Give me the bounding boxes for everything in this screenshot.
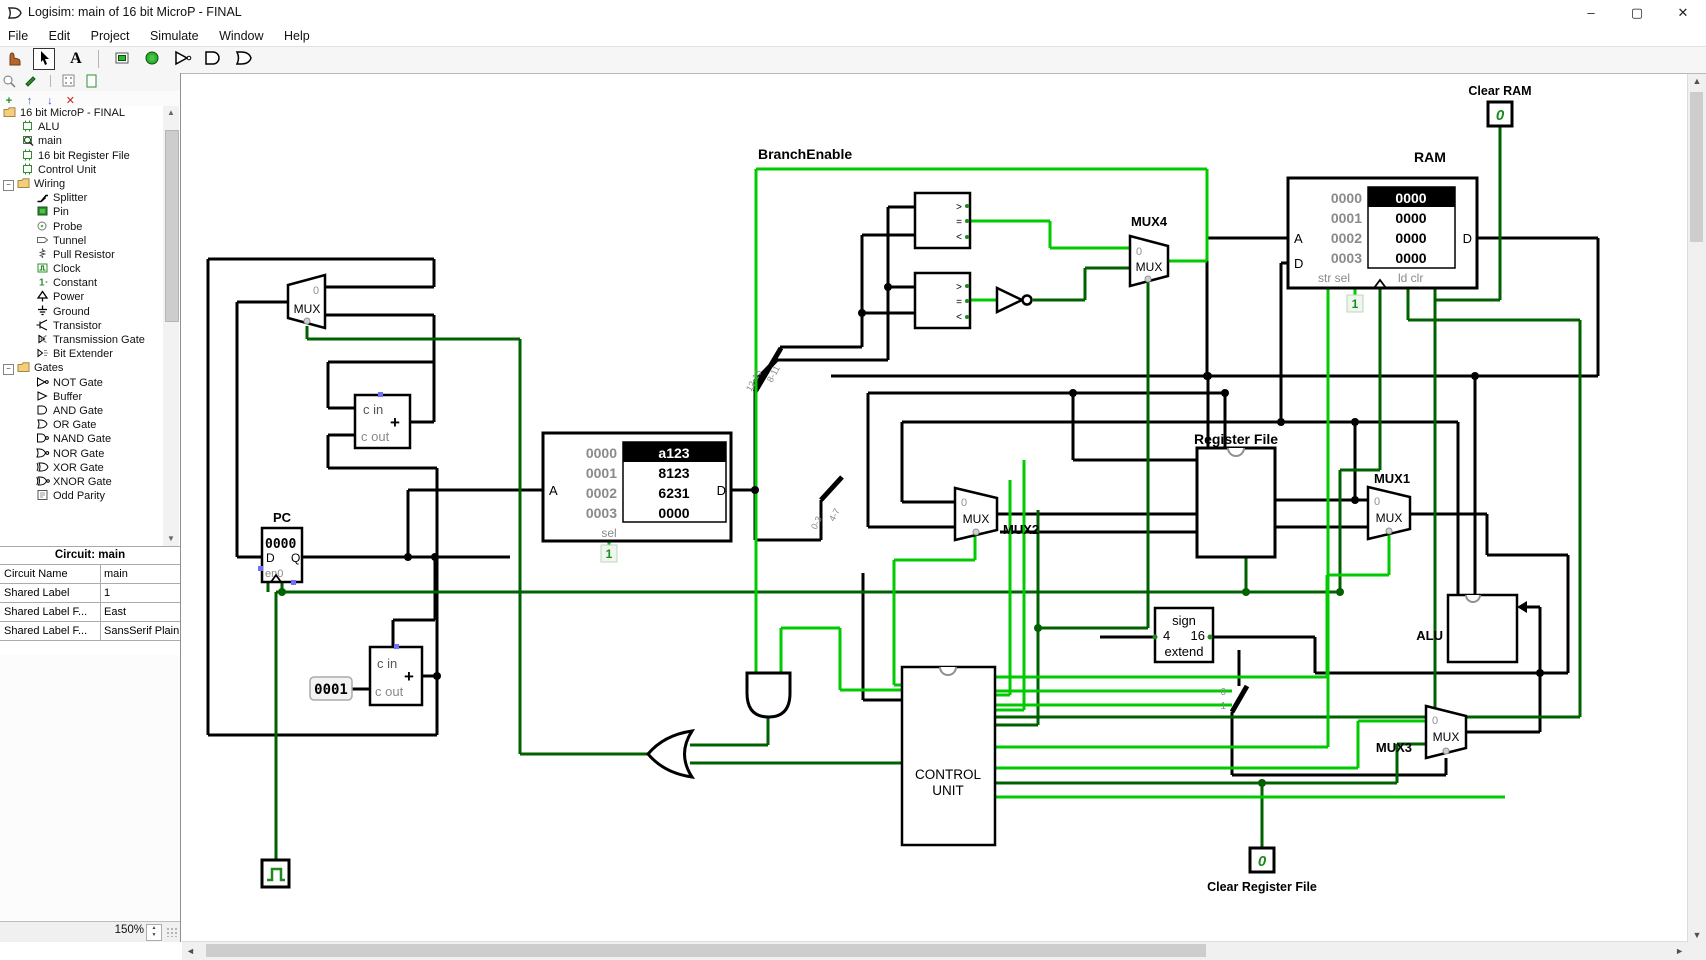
adder-2[interactable]: c in + c out [370, 644, 422, 705]
svg-text:RAM: RAM [1414, 149, 1446, 165]
svg-text:Clear RAM: Clear RAM [1468, 84, 1531, 98]
ground-icon [36, 305, 50, 317]
svg-text:0000: 0000 [265, 537, 296, 552]
edit-appearance-icon[interactable] [24, 74, 38, 88]
svg-text:0000: 0000 [1395, 230, 1426, 246]
svg-text:D: D [1294, 256, 1303, 271]
tree-item-not-gate[interactable]: NOT Gate [0, 376, 180, 390]
collapse-icon[interactable]: − [3, 180, 14, 191]
menu-file[interactable]: File [0, 26, 36, 46]
svg-text:0003: 0003 [586, 505, 617, 521]
svg-text:MUX3: MUX3 [1376, 740, 1412, 755]
and-gate-icon [36, 404, 50, 416]
not-gate[interactable] [997, 288, 1032, 312]
svg-text:ALU: ALU [1416, 628, 1443, 643]
not-gate-icon [36, 376, 50, 388]
spin-down-icon[interactable]: ▼ [147, 932, 161, 939]
or-gate-icon[interactable] [234, 49, 254, 69]
clear-ram-pin[interactable]: Clear RAM 0 [1468, 84, 1531, 126]
svg-text:UNIT: UNIT [932, 783, 964, 798]
svg-text:0: 0 [1258, 853, 1267, 870]
svg-text:>: > [956, 282, 962, 293]
svg-text:>: > [956, 202, 962, 213]
svg-text:16: 16 [1191, 628, 1205, 643]
tree-scrollbar-thumb[interactable] [165, 130, 179, 322]
scroll-up-icon[interactable]: ▲ [163, 106, 179, 120]
xnor-gate-icon [36, 475, 50, 487]
svg-text:c out: c out [361, 429, 390, 444]
attribute-row[interactable]: Circuit Name main [0, 564, 180, 583]
tree-item-odd-parity[interactable]: Odd Parity [0, 489, 180, 503]
layout-view-icon[interactable] [62, 74, 76, 88]
nor-gate-icon [36, 447, 50, 459]
mux3[interactable]: MUX3 0 MUX [1376, 706, 1466, 758]
project-toolbar [0, 73, 180, 92]
poke-tool-icon[interactable] [3, 49, 23, 69]
probe-icon [36, 220, 50, 232]
zoom-level[interactable]: 150% [115, 924, 144, 936]
attribute-value[interactable]: main [101, 565, 180, 583]
svg-text:A: A [1294, 231, 1303, 246]
zoom-control: 150% ▲ ▼ [0, 921, 180, 942]
svg-text:1: 1 [606, 547, 613, 561]
tree-item-splitter[interactable]: Splitter [0, 191, 180, 205]
svg-text:D: D [1463, 231, 1472, 246]
svg-text:MUX: MUX [963, 512, 990, 526]
window-title: Logisim: main of 16 bit MicroP - FINAL [28, 5, 242, 19]
folder-icon [3, 106, 17, 118]
left-panel: + ↑ ↓ ✕ 16 bit MicroP - FINAL ALU main 1… [0, 73, 181, 942]
svg-text:Register File: Register File [1194, 431, 1278, 447]
output-pin-icon[interactable] [142, 49, 162, 69]
branch-and-gate[interactable] [747, 673, 790, 717]
svg-text:c out: c out [375, 684, 404, 699]
maximize-button[interactable]: ▢ [1614, 0, 1660, 26]
odd-parity-icon [36, 489, 50, 501]
svg-text:0002: 0002 [1331, 230, 1362, 246]
svg-text:0001: 0001 [1331, 210, 1362, 226]
text-tool-icon[interactable]: A [66, 49, 86, 69]
spin-up-icon[interactable]: ▲ [147, 925, 161, 932]
rom-sel-constant[interactable]: 1 [601, 545, 617, 562]
minimize-button[interactable]: – [1568, 0, 1614, 26]
svg-text:MUX: MUX [1136, 260, 1163, 274]
svg-text:<: < [956, 232, 962, 243]
attribute-row[interactable]: Shared Label F... East [0, 602, 180, 621]
svg-text:MUX: MUX [294, 302, 321, 316]
transmission-gate-icon [36, 333, 50, 345]
svg-text:0000: 0000 [658, 505, 689, 521]
svg-text:ld clr: ld clr [1398, 271, 1423, 285]
menu-help[interactable]: Help [276, 26, 318, 46]
toolbar-separator [50, 75, 51, 87]
pin-icon [36, 205, 50, 217]
branch-or-gate[interactable] [648, 731, 692, 777]
clear-register-file-pin[interactable]: 0 Clear Register File [1207, 848, 1317, 894]
canvas-vertical-scrollbar[interactable]: ▲ ▼ [1687, 74, 1706, 942]
project-explorer-tree: 16 bit MicroP - FINAL ALU main 16 bit Re… [0, 106, 180, 546]
svg-text:1: 1 [1352, 297, 1359, 311]
register-file[interactable]: Register File [1194, 431, 1278, 557]
circuit-icon [21, 120, 35, 132]
logisim-app-icon [7, 5, 24, 26]
tree-item-constant[interactable]: 1Constant [0, 276, 180, 290]
attribute-row[interactable]: Shared Label 1 [0, 583, 180, 602]
tree-item-buffer[interactable]: Buffer [0, 390, 180, 404]
circuit-icon [21, 149, 35, 161]
svg-text:0: 0 [313, 285, 319, 297]
circuit-svg[interactable]: 0 MUX c in + c out c in + c out 0001 PC … [182, 74, 1688, 942]
pc-register[interactable]: PC 0000 D Q en0 [258, 510, 302, 585]
tree-item-clock[interactable]: Clock [0, 262, 180, 276]
circuit-icon [21, 163, 35, 175]
scroll-up-icon[interactable]: ▲ [1688, 76, 1706, 86]
instruction-rom[interactable]: 0000 0001 0002 0003 a123 8123 6231 0000 … [543, 433, 731, 541]
svg-text:0001: 0001 [314, 682, 348, 698]
resize-grip-icon [166, 927, 178, 937]
menu-edit[interactable]: Edit [41, 26, 79, 46]
svg-text:str sel: str sel [1318, 271, 1350, 285]
tree-item-wiring[interactable]: −Wiring [0, 177, 180, 191]
main-toolbar: A [0, 46, 1706, 74]
tree-item-power[interactable]: Power [0, 290, 180, 304]
svg-text:Clear Register File: Clear Register File [1207, 880, 1317, 894]
scroll-left-icon[interactable]: ◄ [186, 946, 195, 956]
tree-item-gates[interactable]: −Gates [0, 361, 180, 375]
attribute-label: Shared Label F... [0, 622, 101, 640]
tree-item-nand-gate[interactable]: NAND Gate [0, 432, 180, 446]
attribute-label: Circuit Name [0, 565, 101, 583]
svg-text:D: D [717, 483, 726, 498]
tree-item-tunnel[interactable]: Tunnel [0, 234, 180, 248]
svg-text:c in: c in [363, 402, 383, 417]
bit-extender-icon [36, 347, 50, 359]
branch-enable-label: BranchEnable [758, 146, 852, 162]
svg-text:0000: 0000 [1395, 210, 1426, 226]
svg-text:sign: sign [1172, 613, 1196, 628]
svg-text:0: 0 [1374, 496, 1380, 508]
svg-text:CONTROL: CONTROL [915, 767, 981, 782]
edit-tool-icon[interactable] [33, 48, 55, 70]
tree-item-xor-gate[interactable]: XOR Gate [0, 461, 180, 475]
scroll-down-icon[interactable]: ▼ [1688, 930, 1706, 940]
svg-text:<: < [956, 312, 962, 323]
svg-text:=: = [956, 217, 962, 228]
nand-gate-icon [36, 432, 50, 444]
svg-text:MUX4: MUX4 [1131, 214, 1168, 229]
svg-text:sel: sel [601, 526, 616, 540]
comparator-2[interactable]: > = < [915, 273, 970, 328]
svg-text:0000: 0000 [1395, 190, 1426, 206]
tree-item-or-gate[interactable]: OR Gate [0, 418, 180, 432]
toolbar-separator [98, 50, 99, 68]
horizontal-scrollbar-thumb[interactable] [206, 944, 1206, 957]
power-icon [36, 290, 50, 302]
svg-text:Q: Q [291, 551, 300, 565]
tree-item-bit-extender[interactable]: Bit Extender [0, 347, 180, 361]
tree-item-nor-gate[interactable]: NOR Gate [0, 447, 180, 461]
select-splitter-labels: 0 1 [1220, 687, 1226, 712]
svg-text:A: A [549, 483, 558, 498]
svg-text:8123: 8123 [658, 465, 689, 481]
attribute-value[interactable]: 1 [101, 584, 180, 602]
vertical-scrollbar-thumb[interactable] [1690, 92, 1703, 242]
svg-text:0: 0 [1220, 687, 1226, 698]
xor-gate-icon [36, 461, 50, 473]
svg-text:0000: 0000 [1395, 250, 1426, 266]
mux4[interactable]: MUX4 0 MUX [1130, 214, 1168, 286]
title-bar: Logisim: main of 16 bit MicroP - FINAL –… [0, 0, 1706, 26]
tree-item-pin[interactable]: Pin [0, 205, 180, 219]
menu-simulate[interactable]: Simulate [142, 26, 207, 46]
ram[interactable]: RAM 0000 0001 0002 0003 0000 0000 0000 0… [1288, 149, 1477, 288]
panel-filler [0, 655, 180, 920]
not-gate-icon[interactable] [173, 49, 193, 69]
attribute-row[interactable]: Shared Label F... SansSerif Plain... [0, 621, 180, 641]
svg-text:0003: 0003 [1331, 250, 1362, 266]
folder-icon [17, 361, 31, 373]
svg-text:MUX: MUX [1433, 730, 1460, 744]
probe-0001[interactable]: 0001 [310, 677, 352, 700]
alu[interactable]: ALU [1416, 595, 1527, 662]
tree-item-main[interactable]: main [0, 134, 180, 148]
tree-item-transistor[interactable]: Transistor [0, 319, 180, 333]
attributes-header: Circuit: main [0, 546, 180, 564]
scrollbar-corner [1688, 942, 1706, 960]
input-pin-icon[interactable] [112, 49, 132, 69]
tree-scrollbar[interactable]: ▲ ▼ [163, 106, 179, 546]
tree-item-ground[interactable]: Ground [0, 305, 180, 319]
svg-text:0: 0 [961, 497, 967, 509]
buffer-icon [36, 390, 50, 402]
folder-icon [17, 177, 31, 189]
attributes-panel: Circuit: main Circuit Name main Shared L… [0, 546, 180, 641]
constant-icon: 1 [36, 276, 50, 288]
ram-sel-constant[interactable]: 1 [1347, 295, 1363, 312]
attribute-value[interactable]: SansSerif Plain... [101, 622, 180, 640]
tree-item-probe[interactable]: Probe [0, 220, 180, 234]
svg-text:0: 0 [1136, 246, 1142, 258]
svg-text:1: 1 [1220, 701, 1226, 712]
svg-text:MUX: MUX [1376, 511, 1403, 525]
tree-item-and-gate[interactable]: AND Gate [0, 404, 180, 418]
svg-text:MUX1: MUX1 [1374, 471, 1410, 486]
scroll-down-icon[interactable]: ▼ [163, 532, 179, 546]
attribute-label: Shared Label [0, 584, 101, 602]
pull-resistor-icon [36, 248, 50, 260]
collapse-icon[interactable]: − [3, 364, 14, 375]
svg-text:0001: 0001 [586, 465, 617, 481]
svg-text:0: 0 [1496, 107, 1505, 124]
svg-text:4: 4 [1163, 628, 1170, 643]
appearance-view-icon[interactable] [85, 74, 99, 88]
svg-text:0000: 0000 [586, 445, 617, 461]
svg-text:0002: 0002 [586, 485, 617, 501]
clock-pin[interactable] [262, 860, 289, 887]
svg-text:extend: extend [1164, 644, 1203, 659]
tree-item-pull-resistor[interactable]: Pull Resistor [0, 248, 180, 262]
transistor-icon [36, 319, 50, 331]
mux1[interactable]: MUX1 0 MUX [1368, 471, 1410, 539]
svg-text:MUX2: MUX2 [1003, 522, 1039, 537]
tree-item-alu[interactable]: ALU [0, 120, 180, 134]
sign-extender[interactable]: sign 4 16 extend [1153, 608, 1214, 662]
svg-text:=: = [956, 297, 962, 308]
clock-icon [36, 262, 50, 274]
tree-item-register-file[interactable]: 16 bit Register File [0, 149, 180, 163]
zoom-spinner[interactable]: ▲ ▼ [146, 924, 162, 941]
comparator-1[interactable]: > = < [915, 193, 970, 248]
tree-item-xnor-gate[interactable]: XNOR Gate [0, 475, 180, 489]
attribute-label: Shared Label F... [0, 603, 101, 621]
svg-text:1: 1 [39, 278, 45, 289]
splitter-icon [36, 191, 50, 203]
adder-1[interactable]: c in + c out [355, 392, 410, 448]
scroll-right-icon[interactable]: ► [1675, 946, 1684, 956]
svg-text:a123: a123 [658, 445, 689, 461]
control-unit[interactable]: CONTROL UNIT [902, 667, 995, 845]
svg-text:+: + [390, 413, 400, 432]
menu-window[interactable]: Window [211, 26, 271, 46]
svg-text:PC: PC [273, 510, 292, 525]
tunnel-icon [36, 234, 50, 246]
svg-text:c in: c in [377, 656, 397, 671]
current-circuit-icon [21, 134, 35, 146]
svg-text:0: 0 [1432, 715, 1438, 727]
svg-text:0000: 0000 [1331, 190, 1362, 206]
canvas-horizontal-scrollbar[interactable]: ◄ ► [182, 941, 1688, 960]
close-button[interactable]: ✕ [1660, 0, 1706, 26]
tree-item-control-unit[interactable]: Control Unit [0, 163, 180, 177]
pc-mux[interactable]: 0 MUX [288, 275, 325, 328]
tree-item-project[interactable]: 16 bit MicroP - FINAL [0, 106, 180, 120]
menu-project[interactable]: Project [83, 26, 138, 46]
or-gate-icon [36, 418, 50, 430]
magnifier-icon[interactable] [2, 74, 16, 88]
explorer-toolbar: + ↑ ↓ ✕ [0, 91, 180, 106]
svg-text:4-7: 4-7 [827, 507, 842, 523]
svg-text:+: + [404, 667, 414, 686]
svg-text:D: D [266, 551, 275, 565]
svg-text:6231: 6231 [658, 485, 689, 501]
circuit-canvas[interactable]: 0 MUX c in + c out c in + c out 0001 PC … [182, 74, 1688, 942]
attribute-value[interactable]: East [101, 603, 180, 621]
and-gate-icon[interactable] [203, 49, 223, 69]
menu-bar: File Edit Project Simulate Window Help [0, 26, 1706, 46]
tree-item-transmission-gate[interactable]: Transmission Gate [0, 333, 180, 347]
